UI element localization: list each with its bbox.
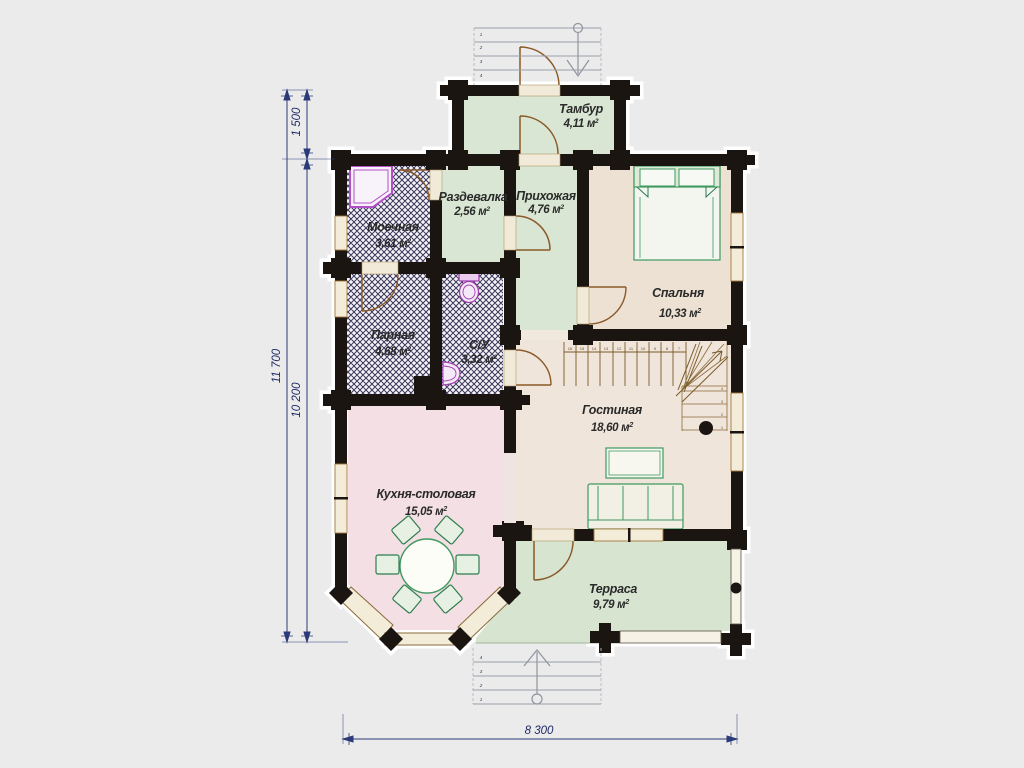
svg-text:4,76 м2: 4,76 м2 (527, 204, 564, 216)
svg-text:3,32 м2: 3,32 м2 (461, 354, 497, 366)
svg-text:Тамбур: Тамбур (559, 102, 604, 116)
svg-text:10 200: 10 200 (291, 382, 303, 418)
svg-text:Моечная: Моечная (367, 220, 420, 234)
svg-text:11 700: 11 700 (271, 348, 283, 383)
svg-text:Раздевалка: Раздевалка (439, 190, 508, 204)
svg-text:Кухня-столовая: Кухня-столовая (377, 487, 477, 501)
svg-text:2: 2 (479, 683, 483, 688)
svg-text:Парная: Парная (371, 328, 416, 342)
svg-text:Прихожая: Прихожая (516, 189, 577, 203)
svg-text:15: 15 (580, 346, 585, 351)
svg-text:14: 14 (592, 346, 597, 351)
svg-text:8 300: 8 300 (525, 725, 554, 737)
svg-text:1 500: 1 500 (291, 107, 303, 136)
svg-text:Терраса: Терраса (589, 582, 637, 596)
svg-text:10,33 м2: 10,33 м2 (659, 308, 701, 320)
svg-text:15,05 м2: 15,05 м2 (405, 506, 447, 518)
svg-text:18,60 м2: 18,60 м2 (591, 422, 633, 434)
svg-text:С/У: С/У (469, 338, 491, 352)
svg-text:2: 2 (479, 45, 483, 50)
svg-text:4,68 м2: 4,68 м2 (374, 346, 411, 358)
svg-text:13: 13 (604, 346, 609, 351)
svg-text:12: 12 (617, 346, 622, 351)
svg-text:16: 16 (568, 346, 573, 351)
svg-text:Спальня: Спальня (652, 286, 705, 300)
svg-text:Гостиная: Гостиная (582, 403, 643, 417)
svg-text:9,79 м2: 9,79 м2 (593, 599, 629, 611)
svg-text:2,56 м2: 2,56 м2 (453, 206, 490, 218)
svg-text:4,11 м2: 4,11 м2 (563, 118, 599, 130)
svg-text:3,61 м2: 3,61 м2 (375, 238, 411, 250)
svg-text:10: 10 (641, 346, 646, 351)
